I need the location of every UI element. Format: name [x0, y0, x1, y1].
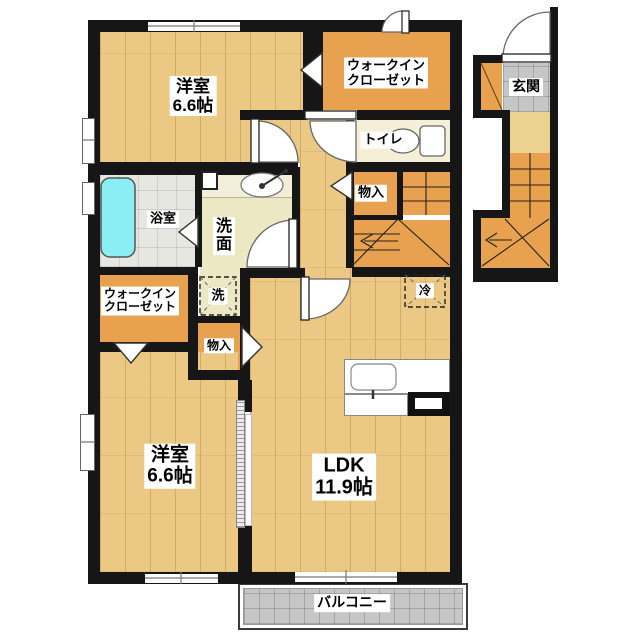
door-wic-top-ext [382, 11, 409, 33]
door-entrance [502, 12, 551, 62]
label-balcony: バルコニー [314, 594, 390, 612]
label-refrigerator: 冷 [416, 283, 434, 298]
folddoor-storage-upper [331, 172, 352, 200]
bathtub [101, 178, 135, 257]
label-bedroom-lower: 洋室 6.6帖 [144, 444, 195, 489]
door-toilet [305, 111, 356, 162]
label-laundry: 洗 [208, 288, 227, 305]
door-bedroom-top [251, 119, 298, 163]
label-toilet: トイレ [360, 132, 405, 149]
label-bedroom-top: 洋室 6.6帖 [170, 76, 217, 116]
folddoor-wic-lower [114, 343, 148, 363]
washroom-pillar [202, 172, 217, 189]
floorplan: 洋室 6.6帖 ウォークイン クローゼット 玄関 トイレ 物入 浴室 洗 面 洗… [0, 0, 640, 640]
label-storage-upper: 物入 [355, 185, 387, 202]
label-wic-lower: ウォークイン クローゼット [101, 287, 179, 316]
door-ldk [301, 277, 350, 320]
wash-basin [241, 169, 288, 197]
label-storage-lower: 物入 [204, 338, 234, 353]
folddoor-storage-lower [242, 327, 262, 367]
label-wic-top: ウォークイン クローゼット [344, 57, 428, 88]
door-washroom [247, 219, 297, 268]
label-ldk: LDK 11.9帖 [312, 454, 376, 501]
plan-symbols [0, 0, 640, 640]
label-washroom: 洗 面 [213, 217, 235, 255]
label-entrance: 玄関 [509, 78, 543, 96]
label-bathroom: 浴室 [147, 211, 179, 228]
folddoor-wic-top [301, 53, 322, 87]
folddoor-bath [179, 217, 198, 247]
kitchen-sink [351, 364, 396, 399]
